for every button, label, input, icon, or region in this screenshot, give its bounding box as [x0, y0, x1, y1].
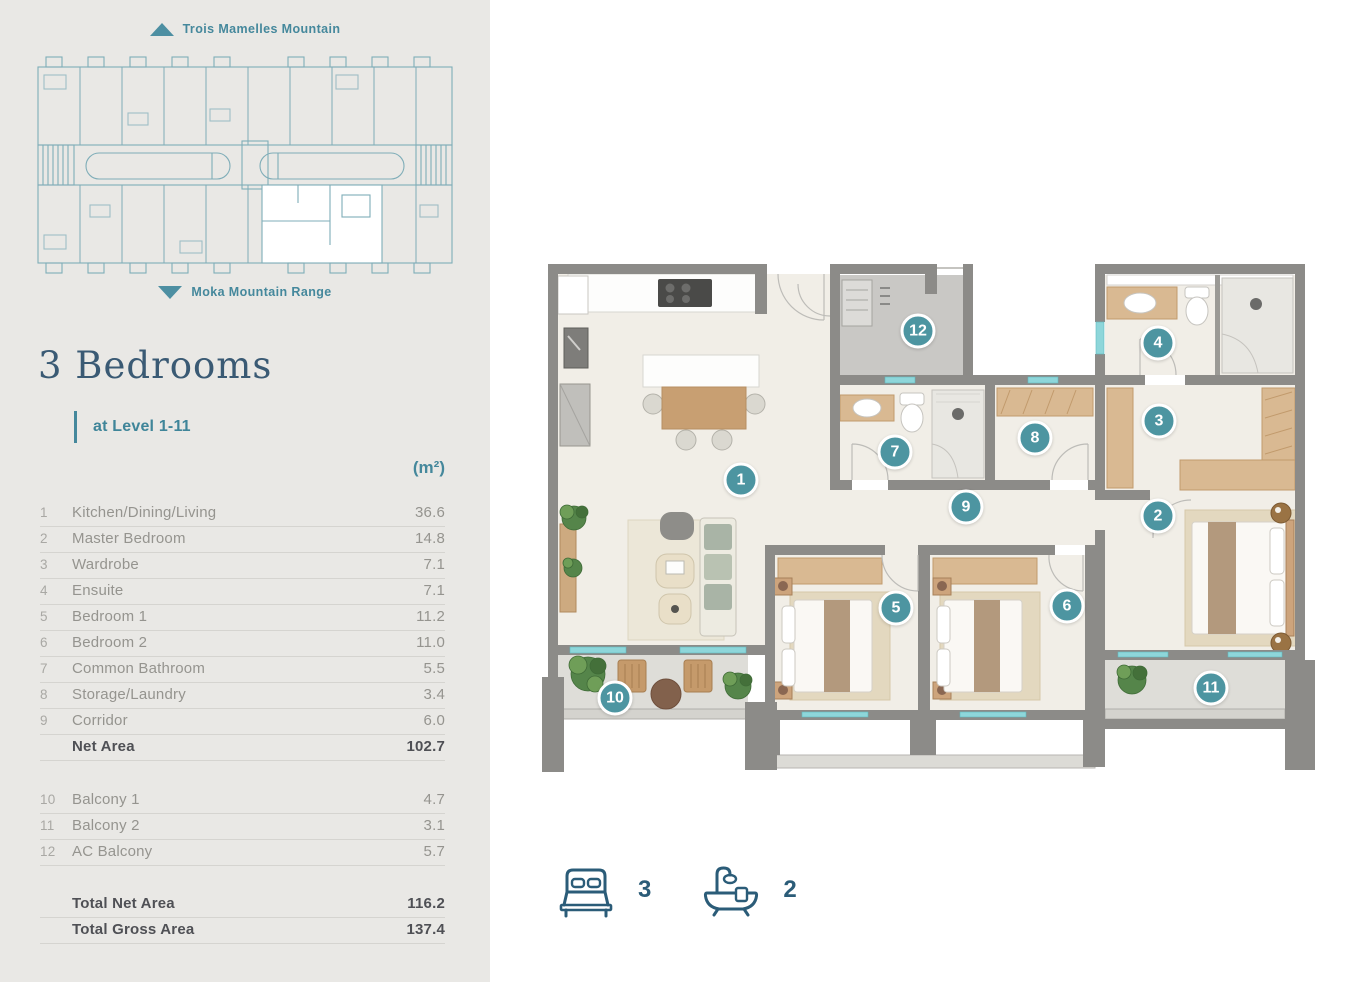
room-label: Net Area: [72, 738, 406, 755]
building-key-plan: [30, 45, 460, 280]
area-row: 5Bedroom 111.2: [40, 605, 445, 631]
plan-marker-4: 4: [1141, 326, 1176, 361]
room-number: 12: [40, 844, 72, 859]
plan-marker-9: 9: [949, 490, 984, 525]
room-number: 3: [40, 557, 72, 572]
room-label: Total Net Area: [72, 895, 407, 912]
room-area: 14.8: [415, 530, 445, 547]
total-rows: Total Net Area116.2Total Gross Area137.4: [40, 892, 445, 944]
room-number: 4: [40, 583, 72, 598]
room-label: Bedroom 1: [72, 608, 416, 625]
area-row: 12AC Balcony5.7: [40, 840, 445, 866]
area-row: 10Balcony 14.7: [40, 788, 445, 814]
sidebar: Trois Mamelles Mountain: [0, 0, 490, 982]
room-label: Balcony 2: [72, 817, 424, 834]
room-label: Kitchen/Dining/Living: [72, 504, 415, 521]
room-label: Corridor: [72, 712, 424, 729]
level-subtitle: at Level 1-11: [74, 411, 191, 443]
area-row: 1Kitchen/Dining/Living36.6: [40, 501, 445, 527]
room-label: Master Bedroom: [72, 530, 415, 547]
keyplan-highlighted-unit: [262, 185, 382, 263]
area-row: Total Net Area116.2: [40, 892, 445, 918]
bathtub-icon: [701, 860, 761, 920]
room-area: 4.7: [424, 791, 445, 808]
plan-marker-12: 12: [901, 314, 936, 349]
room-area: 102.7: [406, 738, 445, 755]
room-rows: 1Kitchen/Dining/Living36.62Master Bedroo…: [40, 501, 445, 761]
key-plan-drawing: [30, 45, 460, 280]
room-area: 3.1: [424, 817, 445, 834]
keyplan-stair-cores: [38, 141, 452, 189]
room-number: 6: [40, 635, 72, 650]
bedroom-count: 3: [638, 876, 651, 904]
plan-marker-10: 10: [598, 681, 633, 716]
master-bedroom: [1185, 503, 1297, 653]
room-number: 9: [40, 713, 72, 728]
room-area: 5.5: [424, 660, 445, 677]
plan-marker-1: 1: [724, 463, 759, 498]
bedroom-1: [774, 558, 890, 700]
keyplan-corridors: [86, 153, 404, 179]
room-area: 137.4: [406, 921, 445, 938]
area-table: 1Kitchen/Dining/Living36.62Master Bedroo…: [40, 501, 445, 944]
keyplan-balcony-teeth-top: [46, 57, 430, 67]
area-row: 9Corridor6.0: [40, 709, 445, 735]
table-gap: [40, 866, 445, 892]
room-area: 7.1: [424, 556, 445, 573]
room-number: 11: [40, 818, 72, 833]
room-area: 6.0: [424, 712, 445, 729]
plan-marker-8: 8: [1018, 421, 1053, 456]
area-row: 8Storage/Laundry3.4: [40, 683, 445, 709]
room-label: Wardrobe: [72, 556, 424, 573]
room-area: 11.0: [416, 634, 445, 651]
room-area: 3.4: [424, 686, 445, 703]
room-label: Bedroom 2: [72, 634, 416, 651]
room-area: 116.2: [407, 895, 445, 912]
plan-marker-11: 11: [1194, 671, 1229, 706]
bed-icon: [556, 860, 616, 920]
room-label: Ensuite: [72, 582, 424, 599]
storage-laundry: [997, 388, 1093, 416]
room-number: 10: [40, 792, 72, 807]
keyplan-bottom-label-row: Moka Mountain Range: [0, 285, 490, 299]
room-label: Balcony 1: [72, 791, 424, 808]
page-title: 3 Bedrooms: [38, 344, 272, 387]
room-area: 36.6: [415, 504, 445, 521]
area-unit-header: (m²): [40, 458, 445, 478]
floor-plan: 123456789101112: [540, 262, 1320, 782]
room-number: 7: [40, 661, 72, 676]
bottom-mountain-label: Moka Mountain Range: [191, 285, 331, 299]
table-gap: [40, 761, 445, 788]
top-mountain-label: Trois Mamelles Mountain: [183, 22, 341, 36]
keyplan-balcony-teeth-bottom: [46, 263, 430, 273]
area-row: Total Gross Area137.4: [40, 918, 445, 944]
room-label: AC Balcony: [72, 843, 424, 860]
area-row: 3Wardrobe7.1: [40, 553, 445, 579]
room-number: 1: [40, 505, 72, 520]
area-row: 11Balcony 23.1: [40, 814, 445, 840]
mountain-up-triangle-icon: [150, 23, 174, 36]
room-number: 8: [40, 687, 72, 702]
plan-marker-7: 7: [878, 435, 913, 470]
balcony-rows: 10Balcony 14.711Balcony 23.112AC Balcony…: [40, 788, 445, 866]
area-row: Net Area102.7: [40, 735, 445, 761]
area-row: 4Ensuite7.1: [40, 579, 445, 605]
area-row: 7Common Bathroom5.5: [40, 657, 445, 683]
room-area: 11.2: [416, 608, 445, 625]
mountain-down-triangle-icon: [158, 286, 182, 299]
room-label: Common Bathroom: [72, 660, 424, 677]
plan-marker-5: 5: [879, 591, 914, 626]
plan-marker-6: 6: [1050, 589, 1085, 624]
room-label: Total Gross Area: [72, 921, 406, 938]
unit-stats: 3 2: [556, 860, 797, 920]
bathroom-count: 2: [783, 876, 796, 904]
room-number: 5: [40, 609, 72, 624]
room-area: 7.1: [424, 582, 445, 599]
room-number: 2: [40, 531, 72, 546]
keyplan-top-label-row: Trois Mamelles Mountain: [0, 22, 490, 36]
area-row: 6Bedroom 211.0: [40, 631, 445, 657]
room-label: Storage/Laundry: [72, 686, 424, 703]
bedroom-2: [933, 558, 1040, 700]
area-row: 2Master Bedroom14.8: [40, 527, 445, 553]
plan-marker-2: 2: [1141, 499, 1176, 534]
room-area: 5.7: [424, 843, 445, 860]
plan-marker-3: 3: [1142, 404, 1177, 439]
